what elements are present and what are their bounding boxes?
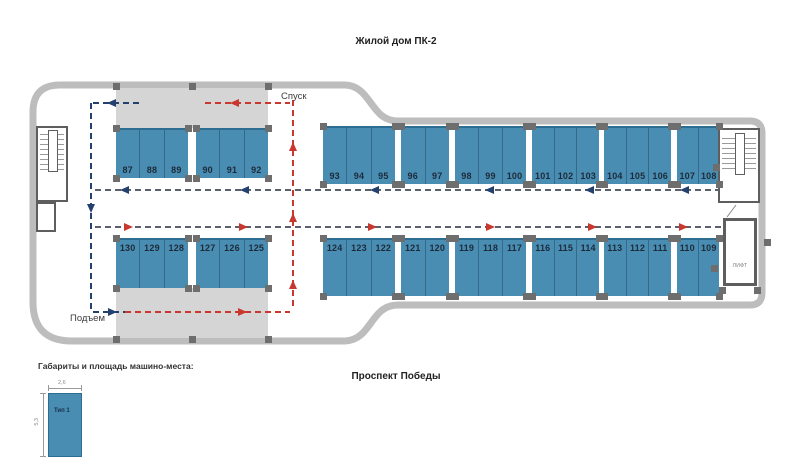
page-title: Жилой дом ПК-2: [276, 36, 516, 47]
parking-stall-group: 116115114: [532, 238, 599, 296]
direction-arrow-icon: [486, 223, 495, 231]
structural-column: [529, 123, 536, 130]
structural-column: [398, 235, 405, 242]
structural-column: [185, 285, 192, 292]
direction-arrow-icon: [107, 99, 116, 107]
structural-column: [193, 125, 200, 132]
structural-column: [265, 235, 272, 242]
traffic-lane-dashed-line: [95, 189, 757, 191]
structural-column: [189, 83, 196, 90]
parking-stall[interactable]: 121: [401, 240, 425, 296]
parking-stall[interactable]: 108: [698, 128, 720, 184]
structural-column: [113, 285, 120, 292]
structural-column: [452, 235, 459, 242]
direction-arrow-icon: [87, 204, 95, 213]
direction-arrow-icon: [240, 186, 249, 194]
direction-arrow-icon: [289, 280, 297, 289]
direction-arrow-icon: [289, 142, 297, 151]
structural-column: [113, 125, 120, 132]
structural-column: [193, 235, 200, 242]
structural-column: [265, 83, 272, 90]
legend-title: Габариты и площадь машино-места:: [38, 361, 194, 371]
parking-stall[interactable]: 97: [425, 128, 450, 184]
structural-column: [601, 181, 608, 188]
parking-stall[interactable]: 110: [677, 240, 698, 296]
structural-column: [265, 336, 272, 343]
parking-stall[interactable]: 120: [425, 240, 450, 296]
staircase-right: [718, 128, 760, 203]
parking-stall-group: 878889: [116, 128, 188, 178]
structural-column: [452, 123, 459, 130]
parking-stall[interactable]: 99: [478, 128, 502, 184]
plan-layer: 8788899091921301291281271261259394959697…: [0, 0, 792, 474]
staircase-left-vestibule: [36, 202, 56, 232]
elevator-label: ЛИФТ: [733, 263, 748, 269]
parking-stall-group: 101102103: [532, 126, 599, 184]
parking-stall[interactable]: 103: [576, 128, 599, 184]
dimension-tick: [40, 393, 46, 394]
structural-column: [189, 336, 196, 343]
direction-arrow-icon: [680, 186, 689, 194]
structural-column: [320, 293, 327, 300]
structural-column: [674, 123, 681, 130]
dimension-tick: [48, 385, 49, 391]
structural-column: [716, 235, 723, 242]
parking-stall-group: 119118117: [455, 238, 526, 296]
structural-column: [193, 175, 200, 182]
structural-column: [398, 181, 405, 188]
parking-stall[interactable]: 93: [323, 128, 346, 184]
traffic-lane-dashed-line: [125, 311, 290, 313]
parking-stall[interactable]: 129: [139, 240, 163, 288]
parking-stall[interactable]: 100: [502, 128, 526, 184]
parking-stall[interactable]: 101: [532, 128, 554, 184]
parking-stall-group: 130129128: [116, 238, 188, 288]
direction-arrow-icon: [485, 186, 494, 194]
structural-column: [193, 285, 200, 292]
parking-stall[interactable]: 111: [648, 240, 671, 296]
structural-column: [674, 235, 681, 242]
parking-stall[interactable]: 130: [116, 240, 139, 288]
direction-arrow-icon: [368, 223, 377, 231]
parking-stall-group: 127126125: [196, 238, 268, 288]
legend-width-dimension: 2,6: [58, 380, 66, 386]
parking-stall[interactable]: 127: [196, 240, 219, 288]
street-label: Проспект Победы: [276, 371, 516, 382]
parking-stall-group: 107108: [677, 126, 719, 184]
traffic-lane-dashed-line: [205, 102, 290, 104]
direction-arrow-icon: [120, 186, 129, 194]
structural-column: [265, 285, 272, 292]
parking-stall[interactable]: 91: [219, 130, 243, 178]
structural-column: [398, 293, 405, 300]
structural-column: [601, 293, 608, 300]
parking-stall-group: 9697: [401, 126, 449, 184]
stair-rail-icon: [48, 130, 58, 172]
structural-column: [716, 293, 723, 300]
parking-stall[interactable]: 119: [455, 240, 478, 296]
parking-stall[interactable]: 88: [139, 130, 163, 178]
parking-stall[interactable]: 92: [244, 130, 268, 178]
structural-column: [754, 287, 761, 294]
structural-column: [113, 83, 120, 90]
dimension-tick: [40, 456, 46, 457]
stair-rail-icon: [735, 133, 745, 175]
structural-column: [601, 235, 608, 242]
parking-stall[interactable]: 98: [455, 128, 478, 184]
parking-stall[interactable]: 125: [244, 240, 268, 288]
structural-column: [716, 181, 723, 188]
parking-stall[interactable]: 116: [532, 240, 554, 296]
direction-arrow-icon: [289, 213, 297, 222]
structural-column: [320, 235, 327, 242]
structural-column: [113, 336, 120, 343]
staircase-left: [36, 126, 68, 202]
structural-column: [185, 125, 192, 132]
structural-column: [113, 175, 120, 182]
parking-stall[interactable]: 126: [219, 240, 243, 288]
legend-depth-dimension: 5,3: [34, 418, 40, 426]
parking-stall[interactable]: 87: [116, 130, 139, 178]
parking-stall-group: 939495: [323, 126, 395, 184]
structural-column: [265, 175, 272, 182]
dimension-line-depth: [43, 393, 44, 457]
parking-stall[interactable]: 89: [164, 130, 188, 178]
ramp-area: [116, 88, 268, 128]
structural-column: [452, 181, 459, 188]
direction-arrow-icon: [239, 223, 248, 231]
structural-column: [113, 235, 120, 242]
parking-stall[interactable]: 115: [554, 240, 577, 296]
parking-stall[interactable]: 112: [626, 240, 649, 296]
structural-column: [398, 123, 405, 130]
legend-type-label: Тип 1: [54, 408, 70, 414]
parking-stall[interactable]: 94: [346, 128, 370, 184]
parking-stall-group: 909192: [196, 128, 268, 178]
parking-stall-group: 121120: [401, 238, 449, 296]
parking-stall[interactable]: 102: [554, 128, 577, 184]
parking-stall[interactable]: 104: [604, 128, 626, 184]
structural-column: [529, 181, 536, 188]
structural-column: [529, 293, 536, 300]
parking-stall[interactable]: 117: [502, 240, 526, 296]
parking-stall[interactable]: 128: [164, 240, 188, 288]
parking-stall-group: 124123122: [323, 238, 395, 296]
direction-arrow-icon: [124, 223, 133, 231]
ascent-ramp-label: Подъем: [70, 313, 105, 324]
structural-column: [265, 125, 272, 132]
structural-column: [674, 293, 681, 300]
dimension-line-width: [48, 388, 82, 389]
parking-stall[interactable]: 113: [604, 240, 626, 296]
parking-stall[interactable]: 114: [576, 240, 599, 296]
direction-arrow-icon: [585, 186, 594, 194]
parking-stall[interactable]: 118: [478, 240, 502, 296]
direction-arrow-icon: [679, 223, 688, 231]
structural-column: [764, 239, 771, 246]
direction-arrow-icon: [230, 99, 239, 107]
parking-stall[interactable]: 107: [677, 128, 698, 184]
traffic-lane-dashed-line: [292, 100, 294, 310]
structural-column: [320, 123, 327, 130]
descent-ramp-label: Спуск: [281, 91, 307, 102]
structural-column: [185, 235, 192, 242]
structural-column: [601, 123, 608, 130]
structural-column: [711, 265, 718, 272]
structural-column: [320, 181, 327, 188]
direction-arrow-icon: [588, 223, 597, 231]
parking-stall[interactable]: 124: [323, 240, 346, 296]
structural-column: [719, 287, 726, 294]
parking-stall[interactable]: 106: [648, 128, 671, 184]
parking-stall-group: 104105106: [604, 126, 671, 184]
traffic-lane-dashed-line: [95, 226, 757, 228]
structural-column: [716, 123, 723, 130]
parking-stall-group: 113112111: [604, 238, 671, 296]
parking-stall[interactable]: 90: [196, 130, 219, 178]
parking-stall[interactable]: 95: [371, 128, 395, 184]
structural-column: [713, 164, 720, 171]
direction-arrow-icon: [108, 308, 117, 316]
traffic-lane-dashed-line: [93, 102, 140, 104]
parking-floor-plan: 8788899091921301291281271261259394959697…: [0, 0, 792, 474]
parking-stall[interactable]: 105: [626, 128, 649, 184]
elevator-room: ЛИФТ: [723, 218, 757, 286]
direction-arrow-icon: [238, 308, 247, 316]
parking-stall-group: 9899100: [455, 126, 526, 184]
structural-column: [452, 293, 459, 300]
structural-column: [529, 235, 536, 242]
parking-stall[interactable]: 96: [401, 128, 425, 184]
legend-stall-type-swatch: Тип 1: [48, 393, 82, 457]
parking-stall[interactable]: 123: [346, 240, 370, 296]
dimension-tick: [81, 385, 82, 391]
direction-arrow-icon: [370, 186, 379, 194]
parking-stall[interactable]: 122: [371, 240, 395, 296]
structural-column: [185, 175, 192, 182]
